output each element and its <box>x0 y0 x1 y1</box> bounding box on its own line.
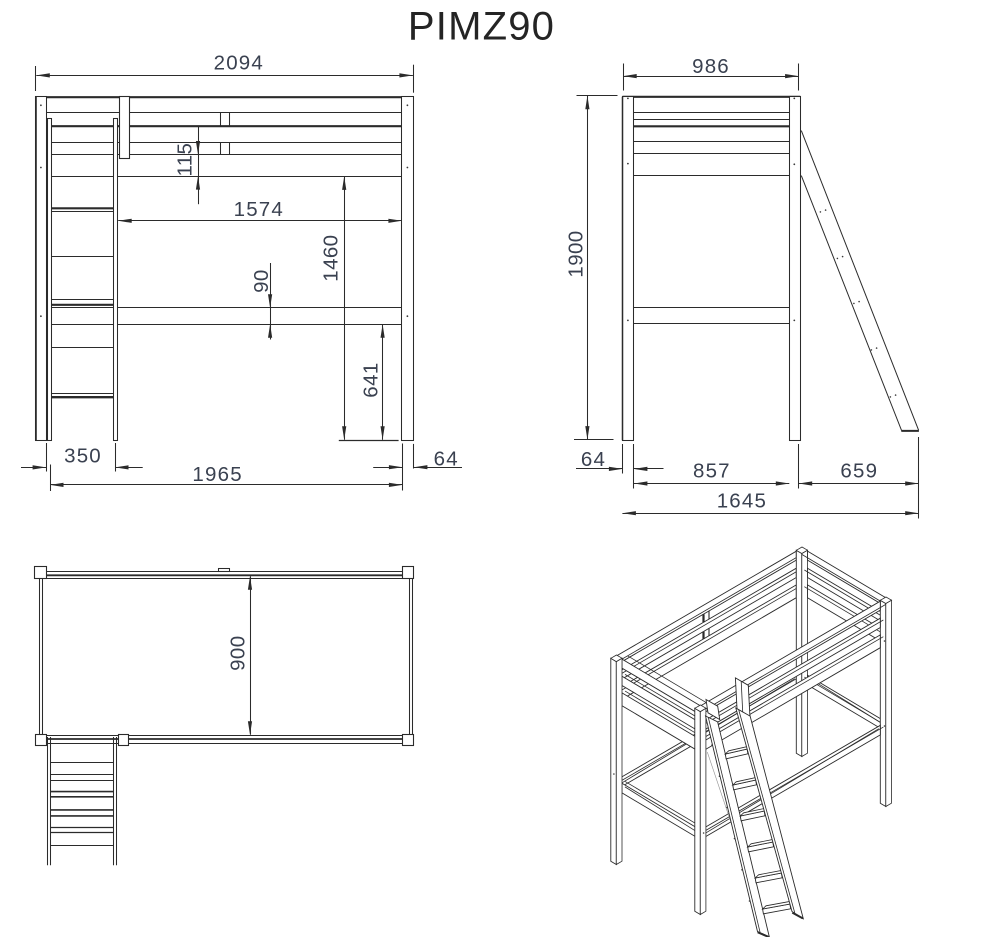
svg-text:1574: 1574 <box>234 198 284 221</box>
svg-text:1645: 1645 <box>717 490 767 513</box>
svg-text:1965: 1965 <box>192 463 242 486</box>
svg-text:64: 64 <box>434 447 459 470</box>
svg-text:PIMZ90: PIMZ90 <box>408 4 555 48</box>
svg-text:986: 986 <box>692 55 730 78</box>
svg-text:857: 857 <box>693 459 731 482</box>
svg-text:350: 350 <box>64 444 102 467</box>
svg-text:2094: 2094 <box>214 51 264 74</box>
svg-text:64: 64 <box>581 448 606 471</box>
svg-text:115: 115 <box>174 143 197 177</box>
svg-text:90: 90 <box>250 269 273 293</box>
svg-text:1460: 1460 <box>320 234 343 281</box>
svg-text:1900: 1900 <box>565 230 588 277</box>
svg-text:900: 900 <box>227 635 250 670</box>
svg-text:659: 659 <box>840 459 878 482</box>
svg-text:641: 641 <box>360 362 383 397</box>
